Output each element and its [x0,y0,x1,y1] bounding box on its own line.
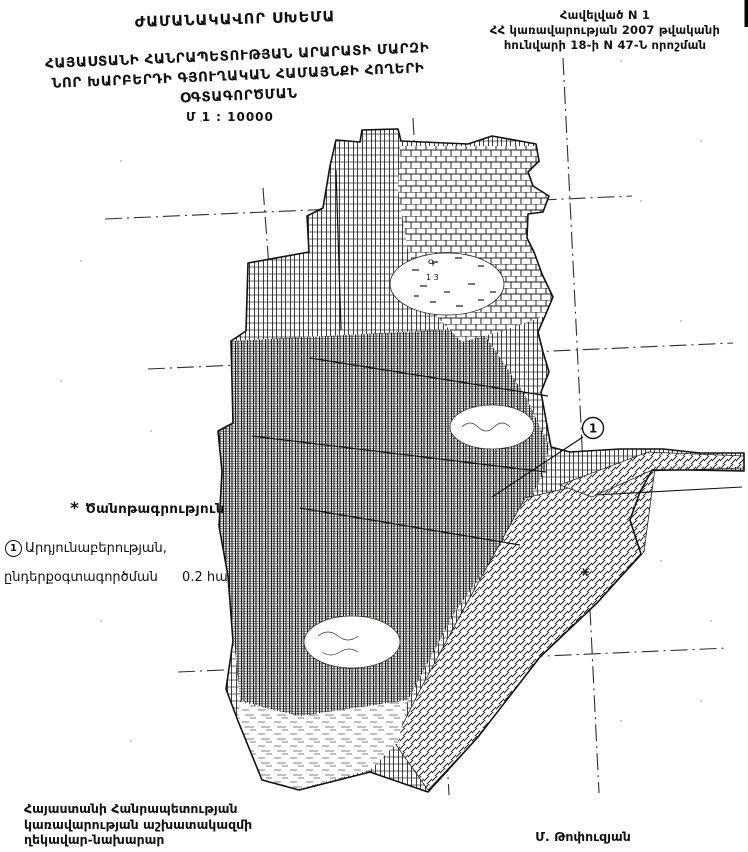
scanned-page: { "page": { "header_right": { "line1": "… [0,0,748,848]
note-item-area: 0.2 հա [182,570,228,585]
signatory-line-3: ղեկավար-նախարար [24,832,252,848]
note-heading: *Ծանոթագրություն [70,498,225,518]
appendix-line-3: հունվարի 18-ի N 47-Ն որոշման [462,38,748,53]
map-open-area-2 [304,616,400,668]
note-heading-label: Ծանոթագրություն [85,501,225,517]
note-item-text: Արդյունաբերության, [25,541,167,556]
note-item-text-2: ընդերքօգտագործման [4,570,158,585]
appendix-line-2: ՀՀ կառավարության 2007 թվականի [462,23,748,38]
appendix-reference: Հավելված N 1 ՀՀ կառավարության 2007 թվակա… [462,8,748,53]
marsh-sublabel: 1 3 [426,273,439,282]
circled-number-icon: 1 [5,540,22,557]
land-use-map-svg: Գ 1 3 1 [0,0,748,848]
note-item-1-continued: ընդերքօգտագործման 0.2 հա [4,570,228,585]
callout-number: 1 [589,422,597,436]
signatory-line-2: կառավարության աշխատակազմի [24,817,252,833]
note-item-1: 1 Արդյունաբերության, [5,540,167,557]
map-canvas: Գ 1 3 1 [0,0,748,848]
asterisk-icon: * [70,499,79,519]
signatory-line-1: Հայաստանի Հանրապետության [24,801,252,817]
map-scale: Մ 1 : 10000 [150,110,310,124]
territory: Գ 1 3 [218,129,744,792]
signatory-title-block: Հայաստանի Հանրապետության կառավարության ա… [24,801,252,848]
map-open-area-1 [450,405,534,449]
marsh-label: Գ [428,259,435,269]
signatory-name: Մ. Թոփուզյան [498,829,668,844]
map-open-area-marsh [390,253,504,315]
appendix-line-1: Հավելված N 1 [462,8,748,23]
